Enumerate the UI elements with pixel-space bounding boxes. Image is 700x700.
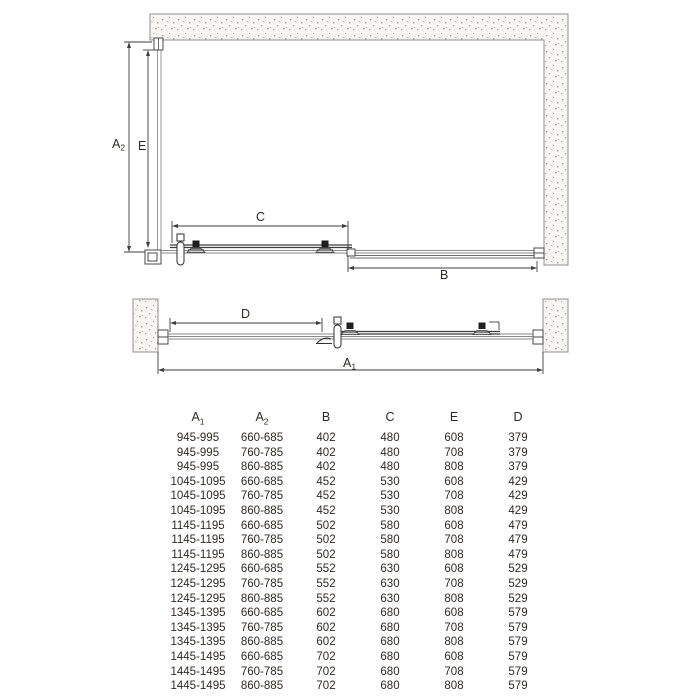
table-cell: 660-685 — [230, 519, 294, 534]
table-cell: 452 — [294, 475, 358, 490]
table-cell: 502 — [294, 533, 358, 548]
table-cell: 480 — [358, 460, 422, 475]
dim-label-a1: A1 — [343, 356, 356, 372]
table-cell: 608 — [422, 475, 486, 490]
table-cell: 680 — [358, 635, 422, 650]
table-cell: 579 — [486, 665, 550, 680]
table-cell: 808 — [422, 548, 486, 563]
column-header-a2: A2 — [230, 407, 294, 431]
table-cell: 502 — [294, 548, 358, 563]
table-cell: 1145-1195 — [166, 519, 230, 534]
table-cell: 608 — [422, 431, 486, 446]
table-cell: 708 — [422, 446, 486, 461]
column-header-b: B — [294, 407, 358, 431]
table-cell: 529 — [486, 592, 550, 607]
table-cell: 429 — [486, 489, 550, 504]
table-cell: 760-785 — [230, 577, 294, 592]
table-row: 1045-1095860-885452530808429 — [166, 504, 550, 519]
table-cell: 452 — [294, 489, 358, 504]
table-row: 1445-1495860-885702680808579 — [166, 679, 550, 694]
table-cell: 630 — [358, 562, 422, 577]
table-cell: 660-685 — [230, 431, 294, 446]
wall-profile-right — [533, 330, 543, 344]
table-row: 945-995760-785402480708379 — [166, 446, 550, 461]
table-row: 1445-1495660-685702680608579 — [166, 650, 550, 665]
table-row: 945-995660-685402480608379 — [166, 431, 550, 446]
table-cell: 1145-1195 — [166, 548, 230, 563]
table-cell: 1445-1495 — [166, 665, 230, 680]
table-cell: 860-885 — [230, 679, 294, 694]
table-cell: 1245-1295 — [166, 592, 230, 607]
table-cell: 702 — [294, 650, 358, 665]
mid-bracket — [347, 249, 355, 256]
table-cell: 1245-1295 — [166, 577, 230, 592]
table-cell: 529 — [486, 577, 550, 592]
table-cell: 608 — [422, 606, 486, 621]
table-row: 1445-1495760-785702680708579 — [166, 665, 550, 680]
front-view-diagram: D A1 — [133, 299, 568, 374]
table-cell: 452 — [294, 504, 358, 519]
corner-bracket — [145, 250, 161, 264]
table-cell: 860-885 — [230, 548, 294, 563]
shower-enclosure-spec-sheet: A2 E C — [0, 0, 700, 700]
table-cell: 552 — [294, 592, 358, 607]
wall-left — [133, 299, 158, 352]
table-row: 1245-1295860-885552630808529 — [166, 592, 550, 607]
table-cell: 1145-1195 — [166, 533, 230, 548]
table-row: 945-995860-885402480808379 — [166, 460, 550, 475]
table-row: 1045-1095760-785452530708429 — [166, 489, 550, 504]
table-cell: 579 — [486, 635, 550, 650]
spec-table: A1 A2 B C E D 945-995660-685402480608379… — [166, 407, 550, 694]
table-row: 1345-1395660-685602680608579 — [166, 606, 550, 621]
technical-drawing: A2 E C — [0, 0, 700, 405]
column-header-e: E — [422, 407, 486, 431]
table-cell: 602 — [294, 606, 358, 621]
table-cell: 1345-1395 — [166, 635, 230, 650]
roller — [316, 241, 334, 253]
table-row: 1345-1395760-785602680708579 — [166, 621, 550, 636]
table-cell: 479 — [486, 519, 550, 534]
table-cell: 530 — [358, 475, 422, 490]
table-cell: 708 — [422, 489, 486, 504]
fixed-glass-panel — [350, 256, 537, 259]
table-cell: 379 — [486, 460, 550, 475]
door-handle — [334, 317, 341, 348]
table-cell: 429 — [486, 475, 550, 490]
table-cell: 552 — [294, 562, 358, 577]
table-cell: 608 — [422, 519, 486, 534]
table-cell: 579 — [486, 606, 550, 621]
table-cell: 602 — [294, 635, 358, 650]
table-row: 1145-1195660-685502580608479 — [166, 519, 550, 534]
table-cell: 1345-1395 — [166, 606, 230, 621]
table-cell: 660-685 — [230, 606, 294, 621]
table-header-row: A1 A2 B C E D — [166, 407, 550, 431]
wall-profile-left — [158, 330, 168, 344]
table-cell: 945-995 — [166, 446, 230, 461]
dim-label-d: D — [241, 307, 250, 321]
table-row: 1045-1095660-685452530608429 — [166, 475, 550, 490]
table-cell: 402 — [294, 431, 358, 446]
glass-side-panel — [158, 40, 162, 252]
table-cell: 580 — [358, 533, 422, 548]
table-cell: 660-685 — [230, 475, 294, 490]
table-cell: 608 — [422, 650, 486, 665]
table-cell: 808 — [422, 504, 486, 519]
table-cell: 808 — [422, 592, 486, 607]
table-cell: 808 — [422, 635, 486, 650]
table-cell: 579 — [486, 621, 550, 636]
dim-label-b: B — [440, 268, 448, 282]
door-handle — [177, 234, 184, 265]
table-cell: 1445-1495 — [166, 650, 230, 665]
plan-view-diagram: A2 E C — [112, 14, 568, 282]
table-cell: 860-885 — [230, 635, 294, 650]
wall — [150, 14, 568, 265]
tick-mark — [489, 322, 499, 330]
roller — [341, 323, 359, 335]
table-cell: 860-885 — [230, 460, 294, 475]
table-cell: 708 — [422, 577, 486, 592]
table-cell: 1445-1495 — [166, 679, 230, 694]
table-cell: 680 — [358, 621, 422, 636]
table-cell: 379 — [486, 446, 550, 461]
table-cell: 860-885 — [230, 504, 294, 519]
table-cell: 1045-1095 — [166, 489, 230, 504]
table-cell: 402 — [294, 446, 358, 461]
table-row: 1245-1295760-785552630708529 — [166, 577, 550, 592]
table-cell: 760-785 — [230, 489, 294, 504]
table-cell: 429 — [486, 504, 550, 519]
table-cell: 530 — [358, 504, 422, 519]
column-header-d: D — [486, 407, 550, 431]
table-cell: 502 — [294, 519, 358, 534]
table-cell: 480 — [358, 431, 422, 446]
dim-label-c: C — [256, 210, 265, 224]
table-row: 1145-1195760-785502580708479 — [166, 533, 550, 548]
table-cell: 379 — [486, 431, 550, 446]
table-cell: 579 — [486, 679, 550, 694]
table-cell: 402 — [294, 460, 358, 475]
table-cell: 708 — [422, 665, 486, 680]
table-cell: 680 — [358, 665, 422, 680]
table-row: 1245-1295660-685552630608529 — [166, 562, 550, 577]
roller — [187, 241, 205, 253]
table-cell: 1345-1395 — [166, 621, 230, 636]
table-cell: 702 — [294, 665, 358, 680]
table-cell: 760-785 — [230, 446, 294, 461]
wall-right — [543, 299, 568, 352]
column-header-c: C — [358, 407, 422, 431]
table-cell: 708 — [422, 533, 486, 548]
table-cell: 552 — [294, 577, 358, 592]
table-cell: 480 — [358, 446, 422, 461]
table-cell: 680 — [358, 679, 422, 694]
roller — [473, 323, 491, 335]
table-cell: 808 — [422, 460, 486, 475]
table-cell: 1045-1095 — [166, 475, 230, 490]
table-row: 1345-1395860-885602680808579 — [166, 635, 550, 650]
table-row: 1145-1195860-885502580808479 — [166, 548, 550, 563]
table-cell: 760-785 — [230, 621, 294, 636]
table-cell: 680 — [358, 650, 422, 665]
table-cell: 1045-1095 — [166, 504, 230, 519]
table-cell: 808 — [422, 679, 486, 694]
table-cell: 708 — [422, 621, 486, 636]
column-header-a1: A1 — [166, 407, 230, 431]
table-cell: 580 — [358, 519, 422, 534]
table-cell: 660-685 — [230, 650, 294, 665]
table-cell: 630 — [358, 577, 422, 592]
table-cell: 479 — [486, 533, 550, 548]
table-cell: 530 — [358, 489, 422, 504]
spec-table-body: 945-995660-685402480608379945-995760-785… — [166, 431, 550, 694]
dim-label-e: E — [138, 139, 146, 153]
table-cell: 945-995 — [166, 431, 230, 446]
table-cell: 760-785 — [230, 533, 294, 548]
table-cell: 608 — [422, 562, 486, 577]
table-cell: 1245-1295 — [166, 562, 230, 577]
table-cell: 529 — [486, 562, 550, 577]
table-cell: 580 — [358, 548, 422, 563]
dim-label-a2: A2 — [112, 137, 125, 153]
table-cell: 945-995 — [166, 460, 230, 475]
table-cell: 760-785 — [230, 665, 294, 680]
wall-profile-right — [534, 248, 544, 258]
table-cell: 630 — [358, 592, 422, 607]
table-cell: 660-685 — [230, 562, 294, 577]
table-cell: 680 — [358, 606, 422, 621]
table-cell: 579 — [486, 650, 550, 665]
table-cell: 860-885 — [230, 592, 294, 607]
table-cell: 602 — [294, 621, 358, 636]
table-cell: 702 — [294, 679, 358, 694]
table-cell: 479 — [486, 548, 550, 563]
